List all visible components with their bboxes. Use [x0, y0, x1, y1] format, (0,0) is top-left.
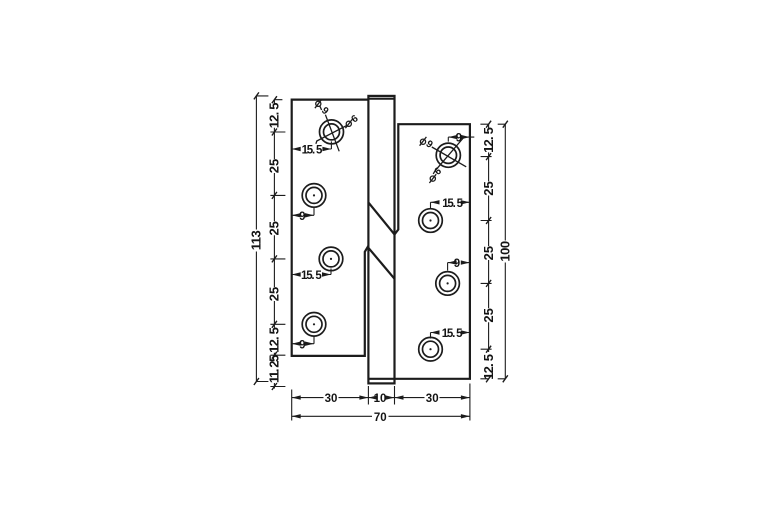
svg-text:9: 9	[299, 339, 305, 351]
svg-text:25: 25	[267, 159, 282, 173]
svg-text:12. 5: 12. 5	[267, 327, 282, 352]
svg-text:12. 5: 12. 5	[267, 103, 282, 128]
svg-text:9: 9	[299, 211, 305, 223]
svg-text:100: 100	[498, 241, 513, 261]
svg-text:25: 25	[481, 246, 496, 260]
svg-text:30: 30	[325, 393, 338, 405]
svg-text:25: 25	[267, 221, 282, 235]
svg-text:25: 25	[481, 308, 496, 322]
svg-text:12. 5: 12. 5	[481, 127, 496, 152]
svg-text:113: 113	[249, 230, 264, 250]
svg-text:9: 9	[456, 133, 462, 145]
svg-text:70: 70	[374, 412, 387, 424]
svg-text:10: 10	[374, 393, 387, 405]
svg-text:11. 25: 11. 25	[267, 355, 282, 383]
svg-text:25: 25	[267, 287, 282, 301]
svg-text:9: 9	[454, 258, 460, 270]
svg-text:15. 5: 15. 5	[302, 145, 323, 157]
svg-text:12. 5: 12. 5	[481, 354, 496, 379]
svg-text:15. 5: 15. 5	[301, 270, 322, 282]
svg-text:15. 5: 15. 5	[442, 328, 463, 340]
svg-text:30: 30	[426, 393, 439, 405]
svg-text:25: 25	[481, 181, 496, 195]
svg-text:15. 5: 15. 5	[442, 198, 463, 210]
